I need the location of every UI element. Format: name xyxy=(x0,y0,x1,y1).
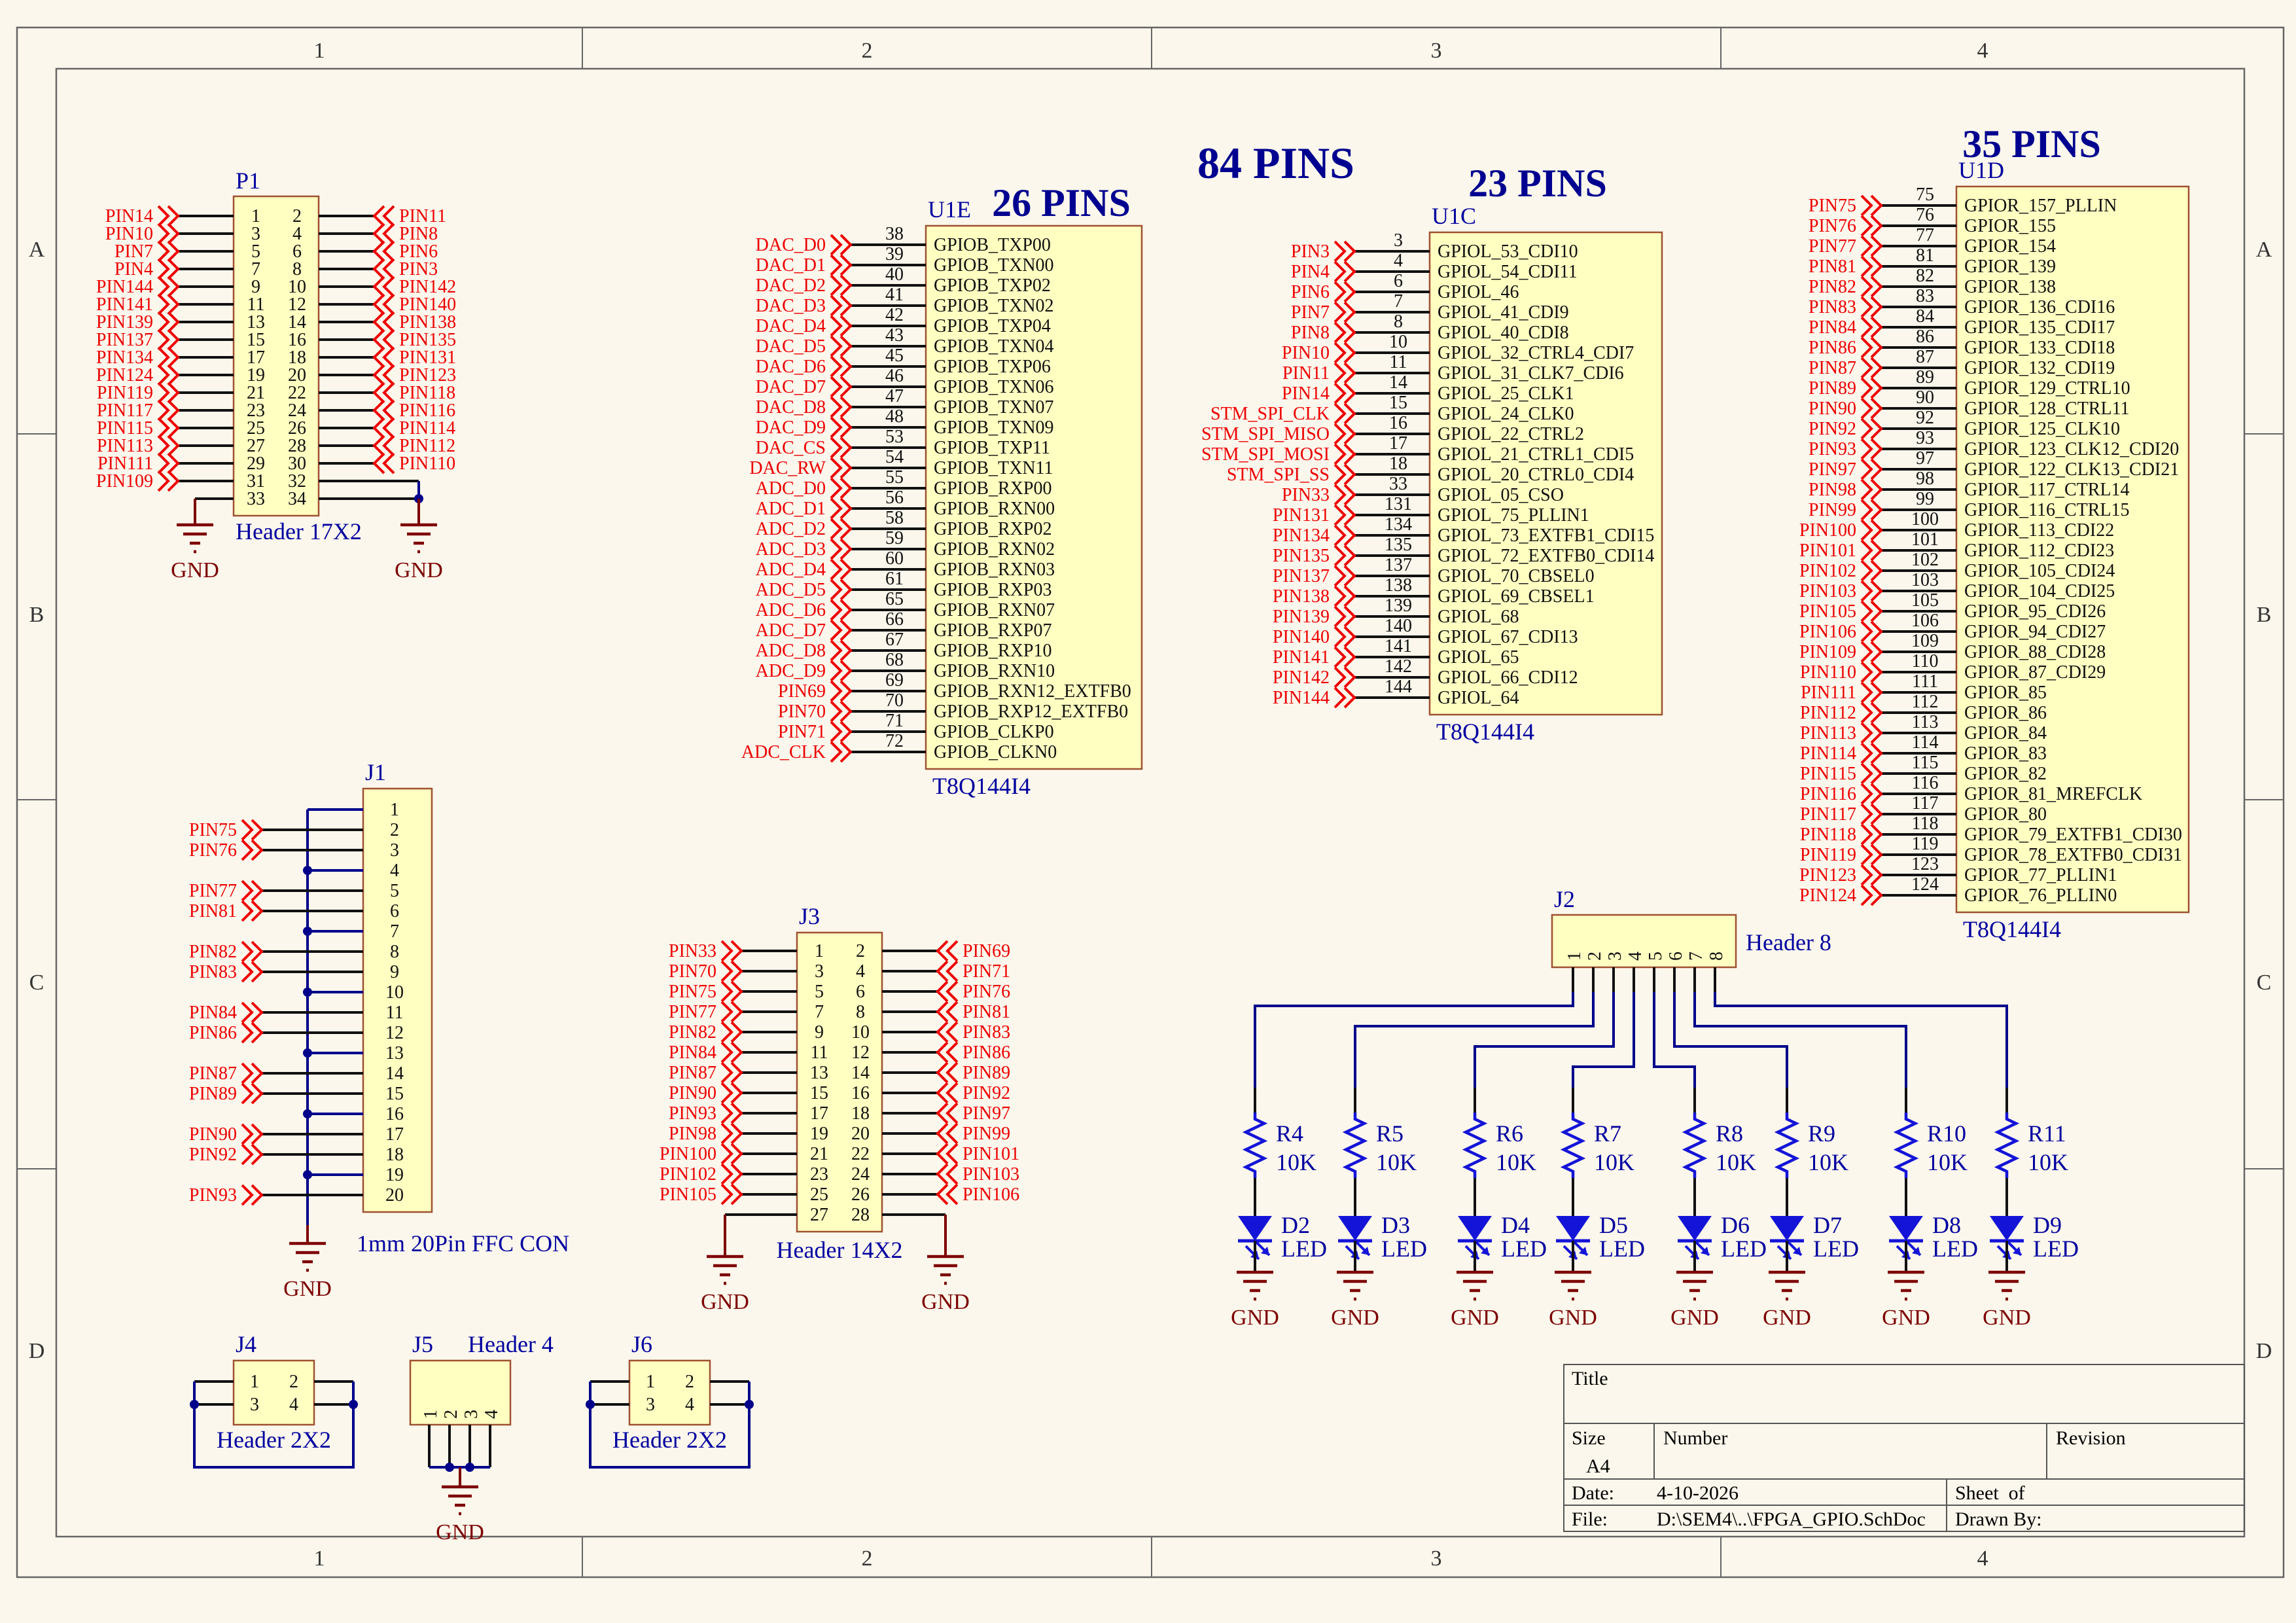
pin-number: 1 xyxy=(815,941,824,961)
pin-name: GPIOR_135_CDI17 xyxy=(1964,317,2115,338)
net-label: ADC_D0 xyxy=(756,478,826,499)
net-label: PIN98 xyxy=(669,1124,716,1144)
pin-number: 141 xyxy=(1385,636,1412,656)
led-designator: D7 xyxy=(1813,1212,1842,1238)
pin-name: GPIOR_136_CDI16 xyxy=(1964,297,2115,317)
led-designator: D8 xyxy=(1932,1212,1961,1238)
pin-number: 6 xyxy=(856,982,865,1002)
pin-number: 46 xyxy=(885,366,904,386)
pin-number: 6 xyxy=(1666,952,1686,961)
net-label: PIN76 xyxy=(189,840,237,861)
pin-number: 59 xyxy=(885,528,904,548)
pin-number: 106 xyxy=(1911,611,1939,631)
led-type-label: LED xyxy=(1721,1236,1767,1262)
pin-number: 16 xyxy=(1389,413,1407,433)
frame-column-label: 2 xyxy=(862,39,873,63)
pin-name: GPIOR_95_CDI26 xyxy=(1964,601,2106,622)
net-label: PIN14 xyxy=(1282,383,1330,404)
net-label: PIN84 xyxy=(189,1003,237,1023)
pin-name: GPIOR_80 xyxy=(1964,804,2047,825)
pin-name: GPIOL_54_CDI11 xyxy=(1438,262,1578,282)
pin-number: 65 xyxy=(885,589,904,609)
pin-name: GPIOR_77_PLLIN1 xyxy=(1964,865,2117,885)
pin-name: GPIOL_24_CLK0 xyxy=(1438,404,1574,424)
pin-number: 68 xyxy=(885,650,904,670)
pin-name: GPIOR_82 xyxy=(1964,764,2047,784)
pin-name: GPIOB_TXN04 xyxy=(934,336,1054,357)
led-designator: D5 xyxy=(1599,1212,1628,1238)
resistor-designator: R10 xyxy=(1927,1120,1966,1147)
pin-number: 4 xyxy=(289,1395,298,1415)
pin-number: 115 xyxy=(1912,753,1939,773)
net-label: PIN82 xyxy=(1809,277,1856,297)
pin-name: GPIOB_RXP10 xyxy=(934,641,1051,661)
pin-number: 18 xyxy=(1389,454,1407,474)
resistor-designator: R11 xyxy=(2028,1120,2066,1147)
net-label: PIN117 xyxy=(1800,804,1856,825)
component-part-number: Header 4 xyxy=(468,1331,554,1357)
pin-number: 5 xyxy=(390,881,399,901)
pin-number: 3 xyxy=(1394,230,1403,251)
net-label: PIN90 xyxy=(189,1124,237,1145)
pin-number: 3 xyxy=(250,1395,259,1415)
junction-dot xyxy=(745,1400,754,1409)
resistor-value: 10K xyxy=(1276,1149,1316,1175)
pin-name: GPIOR_138 xyxy=(1964,277,2056,297)
pin-number: 89 xyxy=(1916,367,1934,387)
pin-name: GPIOR_84 xyxy=(1964,723,2047,743)
net-label: PIN70 xyxy=(669,961,716,982)
pin-number: 17 xyxy=(385,1124,404,1145)
pin-number: 66 xyxy=(885,609,904,630)
net-label: PIN105 xyxy=(1799,601,1856,622)
junction-dot xyxy=(465,1463,474,1472)
titleblock-title-label: Title xyxy=(1572,1368,1608,1389)
net-label: PIN87 xyxy=(669,1063,716,1083)
pin-name: GPIOB_RXP07 xyxy=(934,620,1051,641)
pin-number: 40 xyxy=(885,264,904,285)
net-label: PIN77 xyxy=(669,1002,716,1022)
net-label: ADC_CLK xyxy=(741,742,826,762)
net-label: PIN84 xyxy=(669,1043,716,1063)
pin-number: 5 xyxy=(1646,952,1666,961)
pin-number: 16 xyxy=(851,1083,870,1103)
net-label: PIN71 xyxy=(963,961,1010,982)
pin-name: GPIOR_133_CDI18 xyxy=(1964,338,2115,358)
pin-number: 1 xyxy=(646,1372,655,1392)
pin-number: 1 xyxy=(250,1372,259,1392)
led-designator: D2 xyxy=(1281,1212,1310,1238)
pin-number: 4 xyxy=(482,1410,502,1419)
net-label: PIN109 xyxy=(1799,642,1856,662)
pin-number: 33 xyxy=(1389,474,1407,494)
junction-dot xyxy=(303,1170,312,1179)
pin-number: 3 xyxy=(1605,952,1625,961)
pin-number: 1 xyxy=(390,800,399,820)
net-label: DAC_D1 xyxy=(756,255,826,276)
pin-name: GPIOB_TXP11 xyxy=(934,438,1050,458)
pin-number: 140 xyxy=(1385,616,1412,636)
pin-number: 56 xyxy=(885,488,904,508)
pin-number: 3 xyxy=(815,961,824,982)
pin-name: GPIOL_46 xyxy=(1438,282,1519,302)
pin-name: GPIOR_132_CDI19 xyxy=(1964,358,2115,378)
net-label: PIN69 xyxy=(778,681,826,702)
pin-number: 3 xyxy=(390,840,399,861)
component-part-number: 1mm 20Pin FFC CON xyxy=(357,1230,569,1257)
net-label: PIN86 xyxy=(1809,338,1856,358)
pin-number: 20 xyxy=(851,1124,870,1144)
net-label: PIN92 xyxy=(189,1145,237,1165)
pin-number: 118 xyxy=(1912,813,1939,834)
pin-name: GPIOR_117_CTRL14 xyxy=(1964,480,2130,500)
pin-number: 3 xyxy=(461,1410,482,1419)
pin-number: 14 xyxy=(851,1063,870,1083)
net-label: PIN89 xyxy=(189,1084,237,1104)
led-type-label: LED xyxy=(1281,1236,1327,1262)
pin-name: GPIOR_83 xyxy=(1964,743,2047,764)
frame-column-label: 4 xyxy=(1977,1546,1988,1571)
net-label: PIN92 xyxy=(963,1083,1010,1103)
net-label: DAC_CS xyxy=(756,438,826,458)
led-type-label: LED xyxy=(1932,1236,1978,1262)
pin-number: 87 xyxy=(1916,347,1934,367)
net-label: PIN138 xyxy=(1273,586,1330,607)
resistor-designator: R4 xyxy=(1276,1120,1303,1147)
net-label: PIN75 xyxy=(189,820,237,840)
net-label: PIN69 xyxy=(963,941,1010,961)
pin-number: 134 xyxy=(1385,514,1412,535)
titleblock-file-label: File: xyxy=(1572,1508,1608,1530)
titleblock-number-label: Number xyxy=(1663,1427,1727,1449)
net-label: PIN93 xyxy=(1809,439,1856,459)
pin-number: 7 xyxy=(1686,952,1706,961)
net-label: PIN123 xyxy=(1799,865,1856,885)
pin-number: 14 xyxy=(385,1063,404,1084)
pin-name: GPIOB_RXN00 xyxy=(934,499,1055,519)
ic-U1E: U1ET8Q144I438GPIOB_TXP00DAC_D039GPIOB_TX… xyxy=(741,196,1142,799)
resistor-designator: R7 xyxy=(1594,1120,1621,1147)
component-part-number: Header 14X2 xyxy=(777,1237,903,1263)
pin-number: 26 xyxy=(851,1185,870,1205)
pin-number: 2 xyxy=(390,820,399,840)
junction-dot xyxy=(303,1048,312,1058)
pin-number: 19 xyxy=(385,1165,404,1185)
pin-number: 102 xyxy=(1911,550,1939,570)
net-label: ADC_D1 xyxy=(756,499,826,519)
pin-number: 137 xyxy=(1385,555,1412,575)
gnd-label: GND xyxy=(171,558,219,582)
pin-number: 105 xyxy=(1911,590,1939,611)
gnd-label: GND xyxy=(1670,1306,1719,1330)
led-designator: D9 xyxy=(2033,1212,2062,1238)
pin-name: GPIOB_CLKP0 xyxy=(934,722,1054,742)
pin-name: GPIOB_RXP00 xyxy=(934,478,1051,499)
pin-number: 45 xyxy=(885,346,904,366)
net-label: PIN97 xyxy=(1809,459,1856,480)
net-label: PIN87 xyxy=(1809,358,1856,378)
frame-column-label: 2 xyxy=(862,1546,873,1571)
net-label: PIN100 xyxy=(660,1144,716,1164)
net-label: PIN140 xyxy=(1273,627,1330,647)
pin-number: 3 xyxy=(646,1395,655,1415)
net-label: PIN113 xyxy=(1800,723,1856,743)
pin-name: GPIOB_TXP02 xyxy=(934,276,1051,296)
net-label: DAC_D8 xyxy=(756,397,826,418)
pin-number: 11 xyxy=(386,1003,404,1023)
net-label: ADC_D3 xyxy=(756,539,826,560)
frame-column-label: 4 xyxy=(1977,39,1988,63)
resistor-designator: R9 xyxy=(1808,1120,1835,1147)
pin-number: 69 xyxy=(885,670,904,690)
pin-number: 117 xyxy=(1912,793,1939,813)
pin-name: GPIOR_128_CTRL11 xyxy=(1964,399,2130,419)
pin-number: 17 xyxy=(810,1103,828,1124)
pin-number: 2 xyxy=(685,1372,694,1392)
titleblock-size-value: A4 xyxy=(1586,1455,1610,1477)
pin-number: 7 xyxy=(390,921,399,942)
pin-number: 10 xyxy=(385,982,404,1003)
pin-number: 6 xyxy=(1394,271,1403,291)
resistor-value: 10K xyxy=(1927,1149,1968,1175)
net-label: PIN99 xyxy=(1809,500,1856,520)
pin-name: GPIOR_94_CDI27 xyxy=(1964,622,2106,642)
led-designator: D3 xyxy=(1381,1212,1410,1238)
net-label: PIN105 xyxy=(660,1185,716,1205)
pin-number: 11 xyxy=(1390,352,1407,372)
pin-name: GPIOL_22_CTRL2 xyxy=(1438,424,1584,444)
pin-number: 16 xyxy=(385,1104,404,1124)
net-label: PIN124 xyxy=(1799,885,1856,906)
pin-number: 6 xyxy=(390,901,399,921)
pin-name: GPIOB_TXN00 xyxy=(934,255,1054,276)
net-label: PIN83 xyxy=(963,1022,1010,1043)
pin-number: 10 xyxy=(1389,332,1407,352)
net-label: PIN119 xyxy=(1800,845,1856,865)
net-label: DAC_RW xyxy=(749,458,826,478)
pin-name: GPIOL_67_CDI13 xyxy=(1438,627,1578,647)
pin-name: GPIOR_116_CTRL15 xyxy=(1964,500,2130,520)
gnd-label: GND xyxy=(283,1277,332,1301)
net-label: PIN101 xyxy=(1799,541,1856,561)
junction-dot xyxy=(586,1400,595,1409)
pin-number: 92 xyxy=(1916,408,1934,428)
led-designator: D6 xyxy=(1721,1212,1750,1238)
titleblock-size-label: Size xyxy=(1572,1427,1606,1449)
pin-number: 22 xyxy=(851,1144,870,1164)
frame-row-label: C xyxy=(29,971,44,995)
pin-name: GPIOB_TXP04 xyxy=(934,316,1051,336)
pin-name: GPIOB_RXN07 xyxy=(934,600,1055,620)
net-label: PIN93 xyxy=(189,1185,237,1205)
pin-number: 81 xyxy=(1916,245,1934,266)
pin-number: 93 xyxy=(1916,428,1934,448)
component-designator: J2 xyxy=(1554,886,1575,912)
pin-number: 4 xyxy=(856,961,865,982)
schematic-canvas: 11223344AABBCCDD 84 PINS 26 PINS 23 PINS… xyxy=(0,0,2296,1623)
pin-number: 101 xyxy=(1911,529,1939,550)
pin-name: GPIOL_75_PLLIN1 xyxy=(1438,505,1589,526)
pin-name: GPIOR_157_PLLIN xyxy=(1964,196,2117,216)
pin-name: GPIOB_RXP02 xyxy=(934,519,1051,539)
pin-number: 7 xyxy=(1394,291,1403,312)
resistor-designator: R5 xyxy=(1376,1120,1404,1147)
pin-number: 21 xyxy=(810,1144,828,1164)
pin-number: 4 xyxy=(1625,952,1646,961)
pin-number: 70 xyxy=(885,690,904,711)
frame-column-label: 1 xyxy=(314,39,325,63)
pin-number: 15 xyxy=(810,1083,828,1103)
gnd-label: GND xyxy=(1549,1306,1597,1330)
net-label: PIN103 xyxy=(1799,581,1856,601)
net-label: PIN82 xyxy=(669,1022,716,1043)
pin-number: 90 xyxy=(1916,387,1934,408)
frame-column-label: 1 xyxy=(314,1546,325,1571)
net-label: PIN90 xyxy=(669,1083,716,1103)
pin-number: 72 xyxy=(885,731,904,751)
net-label: PIN87 xyxy=(189,1063,237,1084)
pin-number: 61 xyxy=(885,569,904,589)
pin-number: 10 xyxy=(851,1022,870,1043)
pin-name: GPIOL_32_CTRL4_CDI7 xyxy=(1438,343,1634,363)
net-label: PIN110 xyxy=(399,454,455,474)
pin-name: GPIOR_87_CDI29 xyxy=(1964,662,2106,683)
pin-number: 135 xyxy=(1385,535,1412,555)
resistor-value: 10K xyxy=(1594,1149,1634,1175)
junction-dot xyxy=(303,866,312,875)
pin-number: 7 xyxy=(815,1002,824,1022)
led-type-label: LED xyxy=(1813,1236,1859,1262)
net-label: PIN83 xyxy=(1809,297,1856,317)
pin-name: GPIOR_112_CDI23 xyxy=(1964,541,2114,561)
pin-number: 4 xyxy=(685,1395,694,1415)
titleblock-revision-label: Revision xyxy=(2056,1427,2126,1449)
junction-dot xyxy=(190,1400,199,1409)
net-label: PIN77 xyxy=(1809,236,1856,257)
pin-number: 15 xyxy=(1389,393,1407,413)
led-type-label: LED xyxy=(1599,1236,1645,1262)
pin-number: 12 xyxy=(851,1043,870,1063)
pin-number: 48 xyxy=(885,406,904,427)
pin-name: GPIOR_129_CTRL10 xyxy=(1964,378,2130,399)
net-label: DAC_D2 xyxy=(756,276,826,296)
pin-number: 41 xyxy=(885,285,904,305)
net-label: PIN4 xyxy=(1291,262,1330,282)
pin-number: 13 xyxy=(385,1043,404,1063)
pin-name: GPIOR_104_CDI25 xyxy=(1964,581,2115,601)
pin-number: 58 xyxy=(885,508,904,528)
pin-number: 103 xyxy=(1911,570,1939,590)
net-label: PIN84 xyxy=(1809,317,1856,338)
gnd-label: GND xyxy=(1983,1306,2031,1330)
pin-number: 2 xyxy=(441,1410,461,1419)
pin-number: 23 xyxy=(810,1164,828,1185)
net-label: PIN75 xyxy=(669,982,716,1002)
pin-number: 113 xyxy=(1912,712,1939,732)
net-label: PIN118 xyxy=(1800,825,1856,845)
net-label: PIN141 xyxy=(1273,647,1330,668)
pin-number: 8 xyxy=(1394,312,1403,332)
frame-row-label: B xyxy=(29,603,44,627)
pin-number: 4 xyxy=(1394,251,1403,271)
pin-number: 82 xyxy=(1916,266,1934,286)
pin-number: 8 xyxy=(856,1002,865,1022)
gnd-label: GND xyxy=(395,558,443,582)
pin-number: 123 xyxy=(1911,854,1939,874)
net-label: PIN33 xyxy=(1282,485,1330,505)
titleblock-date-label: Date: xyxy=(1572,1482,1614,1504)
net-label: PIN77 xyxy=(189,881,237,901)
net-label: PIN111 xyxy=(1801,683,1856,703)
pin-number: 114 xyxy=(1912,732,1939,753)
gnd-label: GND xyxy=(1331,1306,1379,1330)
pin-name: GPIOR_85 xyxy=(1964,683,2047,703)
led-type-label: LED xyxy=(1381,1236,1427,1262)
pin-number: 9 xyxy=(815,1022,824,1043)
net-label: PIN6 xyxy=(1291,282,1330,302)
resistor-value: 10K xyxy=(2028,1149,2068,1175)
pin-number: 110 xyxy=(1912,651,1939,671)
frame-column-label: 3 xyxy=(1431,39,1442,63)
resistor-designator: R6 xyxy=(1496,1120,1523,1147)
titleblock-drawnby-label: Drawn By: xyxy=(1955,1508,2041,1530)
net-label: PIN110 xyxy=(1800,662,1856,683)
net-label: PIN106 xyxy=(963,1185,1019,1205)
gnd-label: GND xyxy=(921,1290,970,1314)
pin-number: 34 xyxy=(288,489,306,509)
net-label: PIN135 xyxy=(1273,546,1330,566)
gnd-label: GND xyxy=(1763,1306,1811,1330)
pin-number: 54 xyxy=(885,447,904,467)
heading-26-pins: 26 PINS xyxy=(992,181,1131,224)
net-label: PIN81 xyxy=(1809,257,1856,277)
pin-name: GPIOL_20_CTRL0_CDI4 xyxy=(1438,465,1634,485)
net-label: PIN99 xyxy=(963,1124,1010,1144)
pin-number: 8 xyxy=(390,942,399,962)
junction-dot xyxy=(303,1109,312,1118)
pin-name: GPIOL_31_CLK7_CDI6 xyxy=(1438,363,1624,383)
net-label: PIN142 xyxy=(1273,668,1330,688)
pin-name: GPIOL_69_CBSEL1 xyxy=(1438,586,1595,607)
pin-number: 53 xyxy=(885,427,904,447)
pin-name: GPIOB_RXN10 xyxy=(934,661,1055,681)
pin-number: 116 xyxy=(1912,773,1939,793)
junction-dot xyxy=(303,927,312,936)
net-label: PIN33 xyxy=(669,941,716,961)
pin-name: GPIOB_TXN02 xyxy=(934,296,1054,316)
net-label: ADC_D4 xyxy=(756,560,826,580)
pin-number: 86 xyxy=(1916,327,1934,347)
pin-name: GPIOR_78_EXTFB0_CDI31 xyxy=(1964,845,2182,865)
net-label: PIN86 xyxy=(963,1043,1010,1063)
net-label: PIN115 xyxy=(1800,764,1856,784)
pin-name: GPIOL_72_EXTFB0_CDI14 xyxy=(1438,546,1654,566)
pin-name: GPIOL_65 xyxy=(1438,647,1519,668)
pin-name: GPIOB_RXP12_EXTFB0 xyxy=(934,702,1128,722)
component-body xyxy=(234,1361,314,1425)
pin-number: 76 xyxy=(1916,205,1934,225)
gnd-label: GND xyxy=(436,1520,484,1544)
pin-name: GPIOR_125_CLK10 xyxy=(1964,419,2120,439)
pin-number: 11 xyxy=(811,1043,828,1063)
pin-name: GPIOL_73_EXTFB1_CDI15 xyxy=(1438,526,1654,546)
pin-number: 12 xyxy=(385,1023,404,1043)
sheet-background xyxy=(0,0,2296,1623)
pin-number: 18 xyxy=(385,1145,404,1165)
pin-number: 144 xyxy=(1385,677,1412,697)
component-part-number: T8Q144I4 xyxy=(932,773,1031,799)
net-label: ADC_D9 xyxy=(756,661,826,681)
